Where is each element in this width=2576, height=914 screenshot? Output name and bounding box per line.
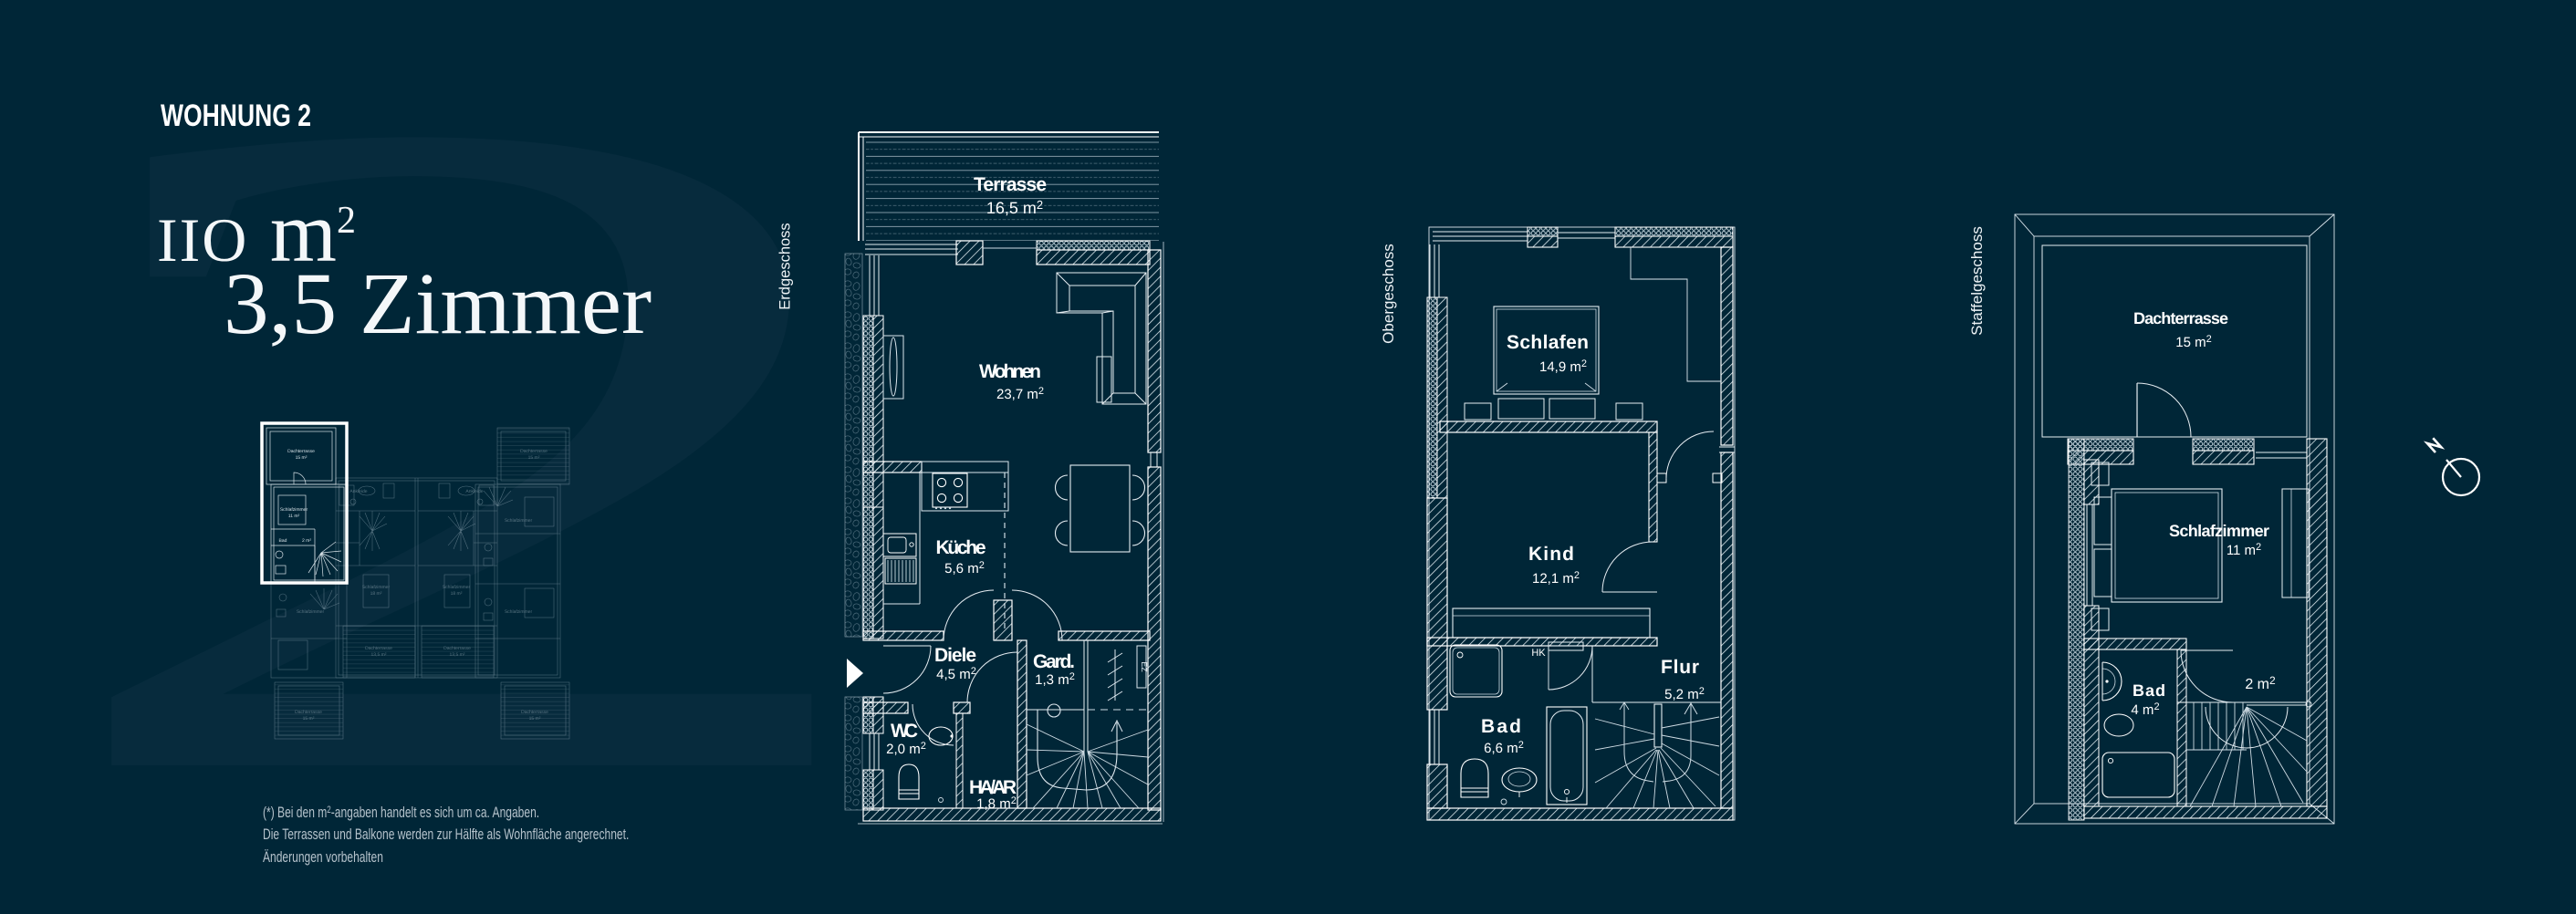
svg-text:Bad: Bad [1481, 716, 1521, 737]
svg-text:Diele: Diele [934, 645, 976, 666]
svg-text:Ankleide: Ankleide [465, 489, 483, 494]
svg-text:Schlafzimmer: Schlafzimmer [2169, 522, 2269, 540]
svg-text:Dachterrasse: Dachterrasse [443, 646, 471, 651]
svg-text:4 m2: 4 m2 [2131, 701, 2159, 718]
svg-text:Dachterrasse: Dachterrasse [295, 710, 322, 715]
svg-text:5,2 m2: 5,2 m2 [1664, 686, 1705, 702]
svg-text:EZ: EZ [1140, 661, 1149, 672]
svg-text:Küche: Küche [936, 537, 986, 558]
svg-text:Schlafzimmer: Schlafzimmer [362, 585, 391, 590]
svg-text:13,5 m²: 13,5 m² [371, 652, 387, 658]
svg-text:16,5 m2: 16,5 m2 [986, 198, 1043, 217]
svg-text:4,5 m2: 4,5 m2 [936, 666, 976, 682]
svg-text:15 m2: 15 m2 [2175, 334, 2211, 350]
svg-text:Flur: Flur [1661, 657, 1699, 678]
svg-text:Dachterrasse: Dachterrasse [521, 710, 548, 715]
svg-text:2 m²: 2 m² [302, 538, 311, 544]
svg-text:Kind: Kind [1528, 544, 1574, 565]
svg-text:15 m²: 15 m² [529, 716, 541, 722]
svg-text:18 m²: 18 m² [370, 591, 382, 597]
svg-text:2 m2: 2 m2 [2245, 674, 2276, 692]
svg-text:Bad: Bad [2133, 681, 2165, 700]
svg-text:11 m2: 11 m2 [2227, 542, 2261, 558]
svg-text:12,1 m2: 12,1 m2 [1532, 570, 1580, 587]
svg-text:5,6 m2: 5,6 m2 [944, 560, 985, 576]
svg-text:Dachterrasse: Dachterrasse [520, 449, 548, 454]
svg-text:14,9 m2: 14,9 m2 [1539, 358, 1587, 375]
svg-text:Dachterrasse: Dachterrasse [365, 646, 392, 651]
svg-text:Schlafzimmer: Schlafzimmer [280, 507, 308, 513]
svg-text:11 m²: 11 m² [288, 514, 300, 519]
svg-text:15 m²: 15 m² [296, 455, 308, 461]
svg-text:23,7 m2: 23,7 m2 [996, 386, 1044, 402]
svg-text:Bad: Bad [279, 538, 287, 544]
svg-text:HA/AR: HA/AR [969, 777, 1017, 798]
svg-text:HK: HK [1531, 648, 1546, 659]
svg-text:1,3 m2: 1,3 m2 [1035, 671, 1075, 688]
svg-text:13,5 m²: 13,5 m² [450, 652, 465, 658]
svg-text:18 m²: 18 m² [451, 591, 463, 597]
svg-text:WC: WC [891, 721, 918, 742]
svg-text:1,8 m2: 1,8 m2 [976, 795, 1017, 812]
svg-text:15 m²: 15 m² [528, 455, 540, 461]
svg-text:15 m²: 15 m² [303, 716, 315, 722]
svg-text:Ankleide: Ankleide [349, 489, 367, 494]
svg-text:Schlafzimmer: Schlafzimmer [443, 585, 471, 590]
svg-text:Schlafzimmer: Schlafzimmer [297, 609, 325, 615]
svg-text:6,6 m2: 6,6 m2 [1484, 740, 1524, 756]
svg-text:Dachterrasse: Dachterrasse [287, 449, 315, 454]
svg-text:Gard.: Gard. [1033, 651, 1075, 672]
svg-text:Terrasse: Terrasse [974, 174, 1047, 195]
svg-text:2,0 m2: 2,0 m2 [886, 741, 926, 757]
svg-text:Wohnen: Wohnen [979, 361, 1041, 382]
svg-text:Dachterrasse: Dachterrasse [2133, 309, 2228, 327]
svg-text:Schlafzimmer: Schlafzimmer [505, 518, 533, 524]
svg-text:Schlafzimmer: Schlafzimmer [505, 609, 533, 615]
svg-text:Schlafen: Schlafen [1507, 332, 1589, 353]
